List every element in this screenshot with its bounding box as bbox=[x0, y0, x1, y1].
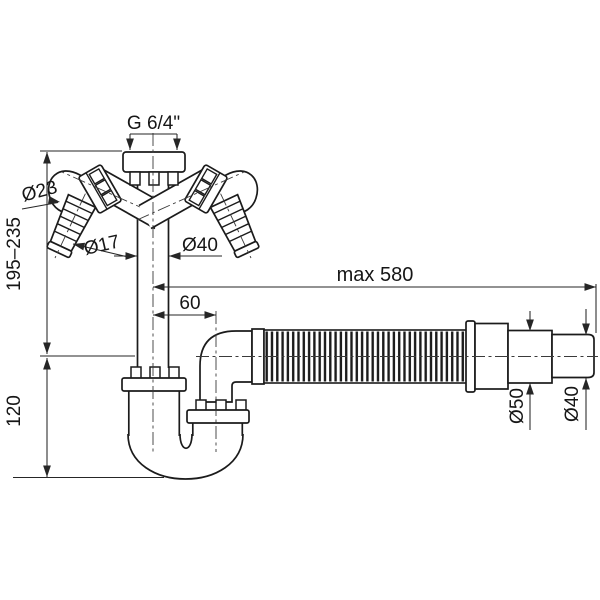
technical-drawing-canvas: G 6/4" Ø23 Ø17 Ø40 195–235 120 60 max 58… bbox=[0, 0, 600, 600]
dim-axis-offset: 60 bbox=[179, 293, 200, 314]
dim-trap-depth: 120 bbox=[4, 395, 25, 427]
dim-thread-size: G 6/4" bbox=[127, 113, 180, 134]
trap-nut-right bbox=[187, 400, 249, 423]
outlet-elbow bbox=[200, 329, 264, 402]
siphon-diagram: G 6/4" Ø23 Ø17 Ø40 195–235 120 60 max 58… bbox=[0, 0, 600, 600]
connector-end-40 bbox=[552, 335, 594, 378]
dim-outlet-end-diameter: Ø40 bbox=[562, 386, 583, 422]
dim-outlet-sleeve-diameter: Ø50 bbox=[507, 388, 528, 424]
dim-hose-max-length: max 580 bbox=[337, 264, 414, 286]
top-thread-nut bbox=[123, 152, 185, 185]
dim-install-height-range: 195–235 bbox=[4, 217, 25, 291]
dim-inlet-diameter: Ø40 bbox=[182, 235, 218, 256]
trap-nut-left bbox=[122, 367, 186, 391]
